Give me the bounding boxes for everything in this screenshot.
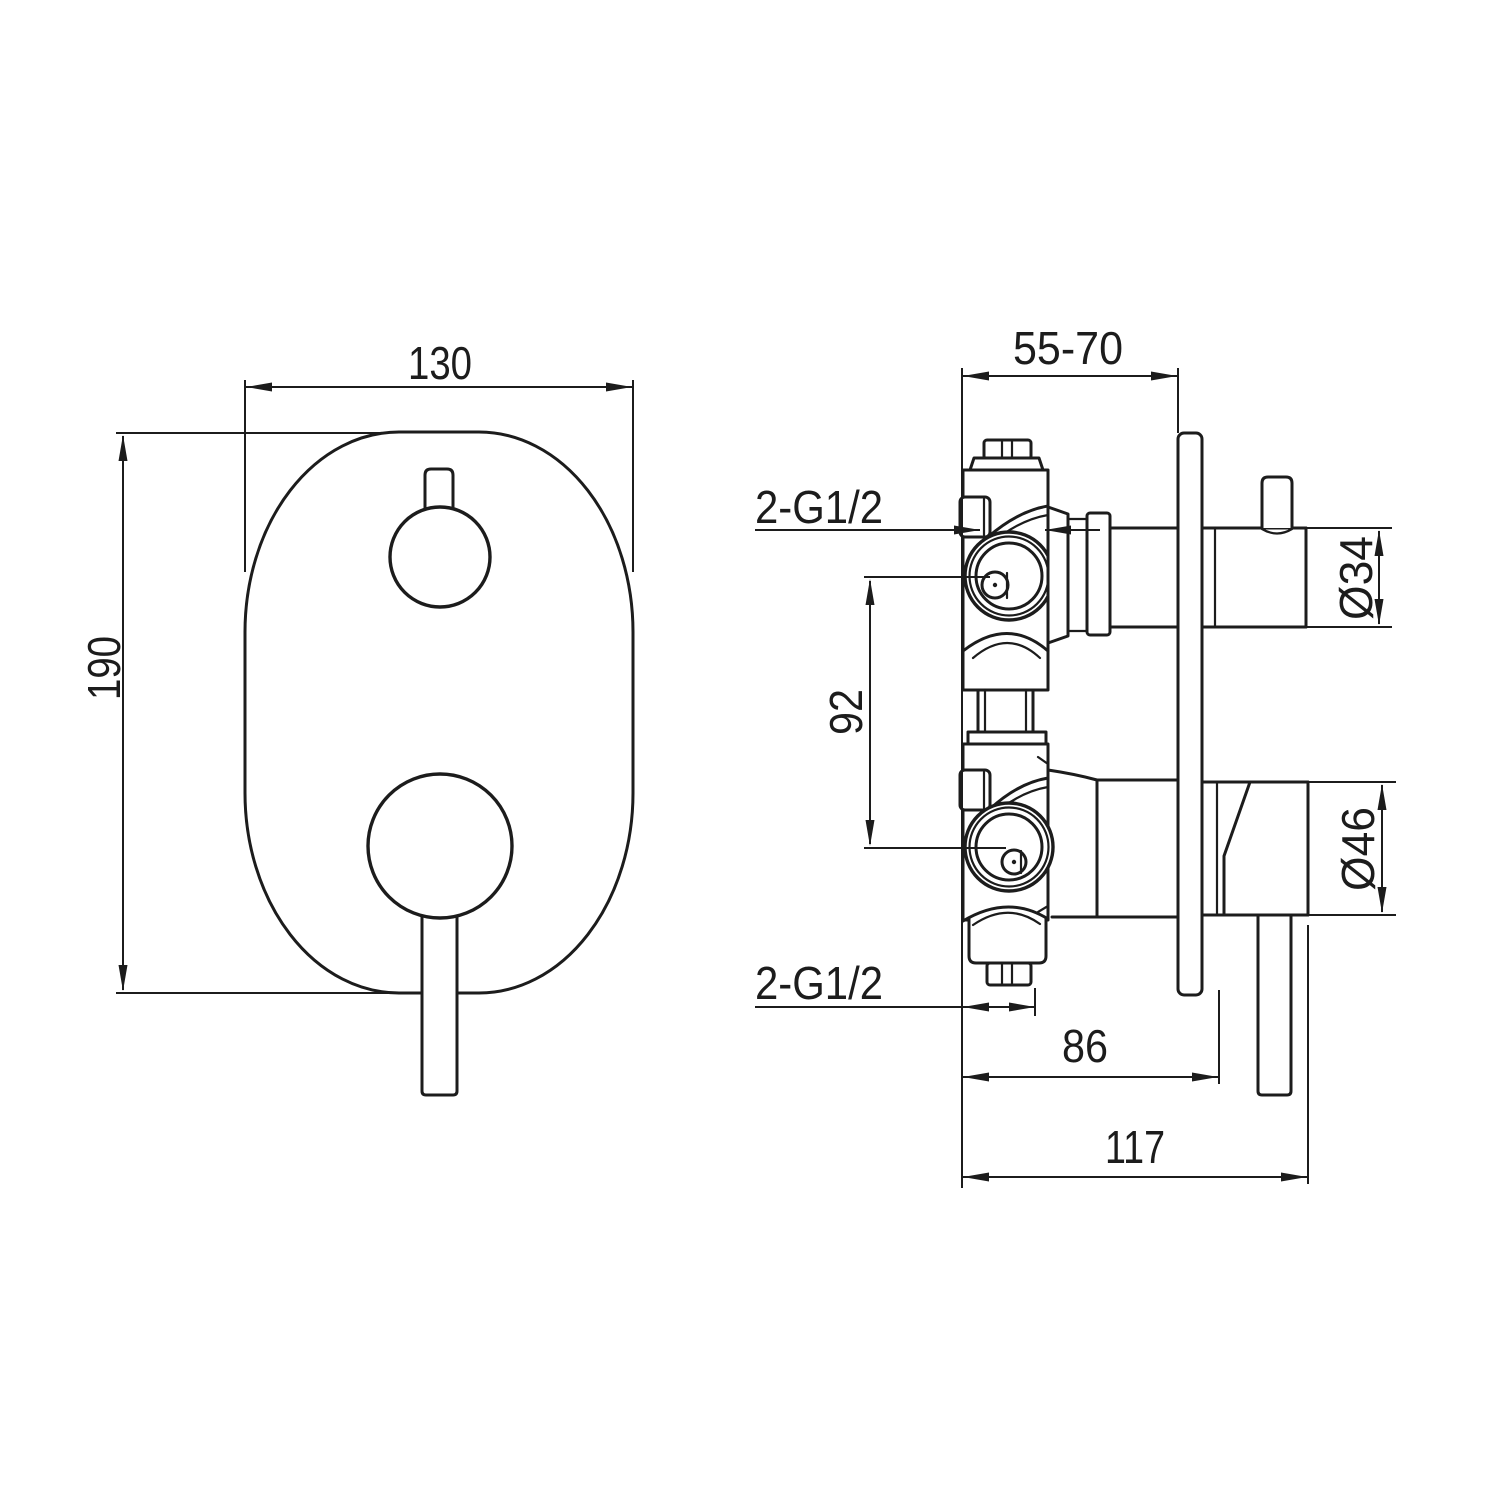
bottom-lever-side xyxy=(1258,915,1291,1095)
arrow-left-icon xyxy=(963,372,989,381)
top-knob-circle xyxy=(390,507,490,607)
inlet-bottom-label: 2-G1/2 xyxy=(755,957,883,1009)
arrow-left-icon xyxy=(963,1003,989,1012)
connecting-tube xyxy=(968,690,1046,744)
inlet-top-label: 2-G1/2 xyxy=(755,481,883,533)
tube-flange xyxy=(968,732,1046,744)
lower-hex-nut xyxy=(987,963,1031,985)
arrow-down-icon xyxy=(119,965,128,991)
arrow-left-icon xyxy=(246,383,272,392)
bottom-knob-circle xyxy=(368,774,512,918)
handle-offset-label: 86 xyxy=(1062,1020,1108,1072)
arrow-up-icon xyxy=(1378,784,1387,810)
top-knob-side xyxy=(1203,477,1306,627)
upper-cap xyxy=(970,458,1043,470)
depth-label: 55-70 xyxy=(1013,322,1123,374)
front-width-label: 130 xyxy=(408,337,472,389)
front-height-label: 190 xyxy=(78,636,130,700)
lower-valve-body xyxy=(960,744,1178,985)
upper-valve-body xyxy=(960,440,1178,690)
bottom-handle-dia-label: Ø46 xyxy=(1332,807,1384,891)
arrow-left-icon xyxy=(963,1173,989,1182)
arrow-right-icon xyxy=(1281,1173,1307,1182)
front-view: 130 190 xyxy=(78,337,633,1095)
arrow-up-icon xyxy=(119,435,128,461)
upper-hex-nut xyxy=(984,440,1031,459)
dim-handle-offset: 86 xyxy=(963,990,1219,1084)
arrow-left-icon xyxy=(963,1073,989,1082)
top-knob-stem-side xyxy=(1262,477,1292,528)
arrow-down-icon xyxy=(866,820,875,846)
upper-step xyxy=(1087,513,1110,635)
arrow-right-icon xyxy=(606,383,632,392)
arrow-right-icon xyxy=(1192,1073,1218,1082)
bottom-lever-front xyxy=(422,908,457,1095)
lower-bottom-block xyxy=(969,918,1046,963)
dim-top-handle-dia: Ø34 xyxy=(1306,528,1392,627)
top-handle-dia-label: Ø34 xyxy=(1330,536,1382,620)
arrow-right-icon xyxy=(1151,372,1177,381)
wall-plate xyxy=(1178,433,1202,995)
dim-bottom-handle-dia: Ø46 xyxy=(1308,782,1396,915)
port-distance-label: 92 xyxy=(820,689,872,735)
side-view: 55-70 2-G1/2 92 Ø34 xyxy=(755,322,1396,1188)
technical-drawing: 130 190 xyxy=(0,0,1500,1500)
arrow-up-icon xyxy=(866,579,875,605)
bottom-knob-side xyxy=(1203,782,1308,915)
arrow-right-icon xyxy=(1009,1003,1035,1012)
lower-inlet-tab xyxy=(960,770,990,810)
overall-projection-label: 117 xyxy=(1105,1121,1165,1173)
dim-depth: 55-70 xyxy=(963,322,1178,433)
